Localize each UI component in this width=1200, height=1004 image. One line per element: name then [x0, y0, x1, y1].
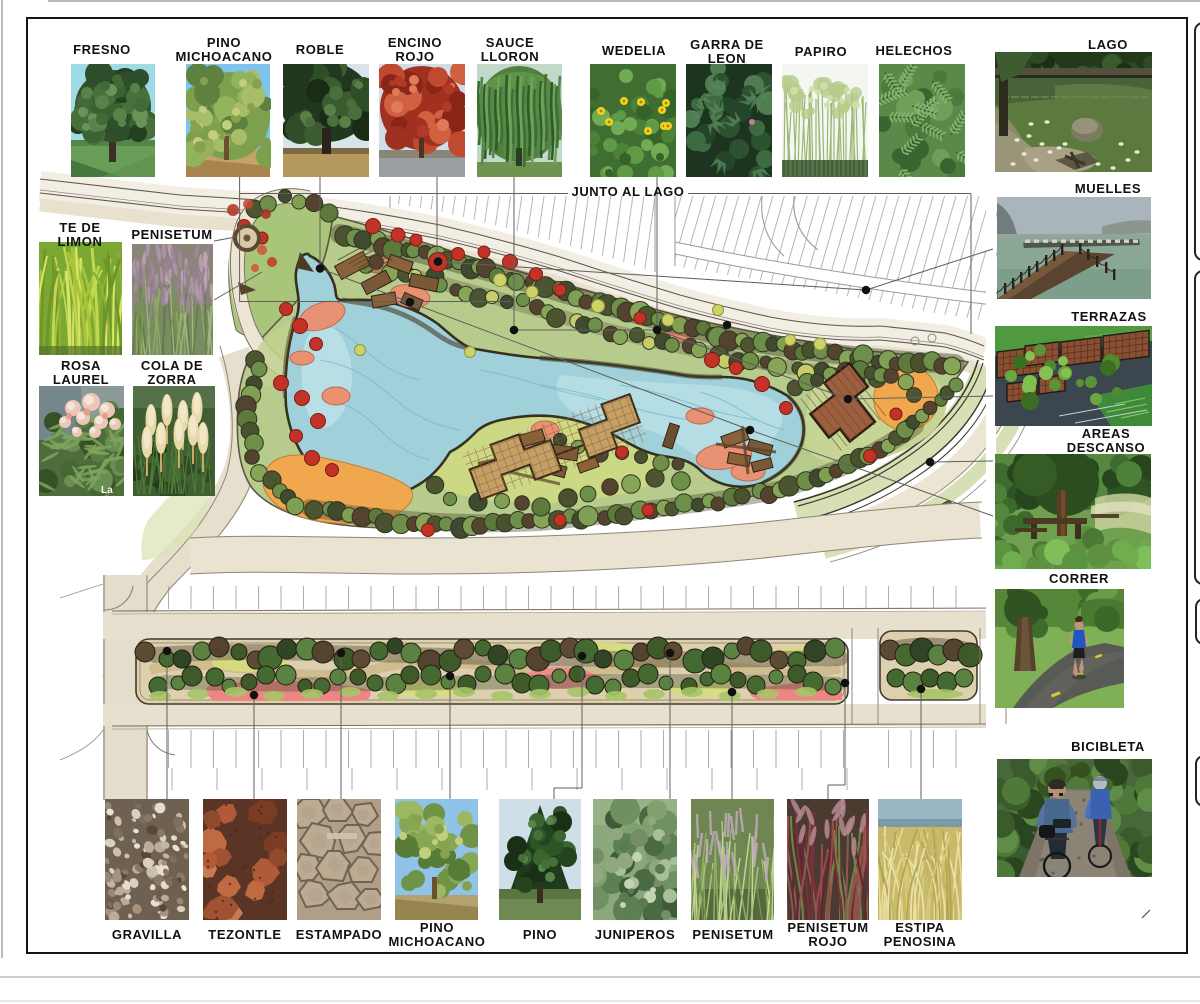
svg-text:La: La — [101, 485, 113, 496]
